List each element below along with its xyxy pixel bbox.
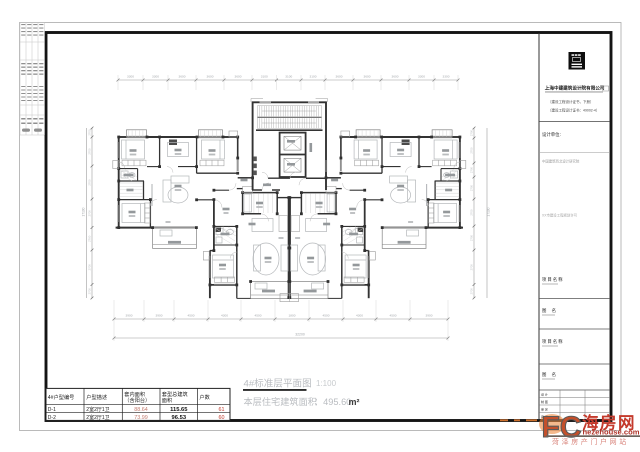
svg-text:3900: 3900 xyxy=(126,314,133,318)
svg-text:4300: 4300 xyxy=(221,314,228,318)
svg-text:套内面积: 套内面积 xyxy=(124,390,145,398)
svg-text:〔建设工程设计证书：49002-4〕: 〔建设工程设计证书：49002-4〕 xyxy=(548,108,599,113)
svg-text:项目名称: 项目名称 xyxy=(542,338,564,345)
svg-text:115.65: 115.65 xyxy=(170,407,188,413)
svg-text:2700: 2700 xyxy=(87,264,91,271)
svg-text:2室2厅1卫: 2室2厅1卫 xyxy=(86,406,109,413)
svg-text:2700: 2700 xyxy=(469,166,473,173)
svg-text:1800: 1800 xyxy=(289,314,296,318)
svg-text:2700: 2700 xyxy=(469,184,473,191)
svg-text:D-1: D-1 xyxy=(48,407,56,413)
svg-text:上海中建建筑设计院有限公司: 上海中建建筑设计院有限公司 xyxy=(545,85,605,92)
svg-text:88.64: 88.64 xyxy=(134,407,148,413)
svg-text:项目名称: 项目名称 xyxy=(542,276,564,283)
svg-text:3900: 3900 xyxy=(156,314,163,318)
svg-text:本层住宅建筑面积: 本层住宅建筑面积 xyxy=(244,396,318,407)
svg-text:32200: 32200 xyxy=(295,332,305,336)
svg-text:4#户型编号: 4#户型编号 xyxy=(48,393,75,401)
svg-text:3600: 3600 xyxy=(364,75,371,79)
svg-text:户数: 户数 xyxy=(199,393,210,401)
svg-text:4500: 4500 xyxy=(188,314,195,318)
svg-text:D-2: D-2 xyxy=(48,415,56,421)
svg-text:2700: 2700 xyxy=(469,264,473,271)
svg-text:菏泽房产门户网站: 菏泽房产门户网站 xyxy=(552,437,629,446)
svg-text:m²: m² xyxy=(349,397,360,407)
svg-text:96.53: 96.53 xyxy=(172,415,187,421)
svg-text:2700: 2700 xyxy=(87,210,91,217)
svg-text:3100: 3100 xyxy=(261,75,268,79)
svg-text:3600: 3600 xyxy=(235,75,242,79)
svg-text:中国建筑西北设计研究院: 中国建筑西北设计研究院 xyxy=(542,159,580,164)
svg-text:（含阳台）: （含阳台） xyxy=(124,396,150,404)
svg-text:套型总建筑: 套型总建筑 xyxy=(162,390,189,398)
svg-text:3300: 3300 xyxy=(127,75,134,79)
svg-text:2室2厅1卫: 2室2厅1卫 xyxy=(86,414,109,421)
svg-text:3900: 3900 xyxy=(426,314,433,318)
svg-text:2700: 2700 xyxy=(87,179,91,186)
svg-text:60: 60 xyxy=(219,415,225,421)
svg-text:17100: 17100 xyxy=(82,207,86,216)
svg-text:设 计: 设 计 xyxy=(541,391,548,396)
svg-text:4#标准层平面图: 4#标准层平面图 xyxy=(244,377,312,389)
svg-text:制 图: 制 图 xyxy=(541,399,548,404)
svg-text:设计单位:: 设计单位: xyxy=(542,131,561,138)
svg-text:1:100: 1:100 xyxy=(316,379,337,388)
svg-text:4500: 4500 xyxy=(390,314,397,318)
svg-text:图 名: 图 名 xyxy=(542,307,558,314)
svg-text:3600: 3600 xyxy=(207,75,214,79)
svg-text:4300: 4300 xyxy=(356,314,363,318)
svg-text:61: 61 xyxy=(219,407,225,413)
svg-text:2700: 2700 xyxy=(87,148,91,155)
svg-text:2700: 2700 xyxy=(469,147,473,154)
svg-text:图 名: 图 名 xyxy=(542,371,558,378)
svg-text:3600: 3600 xyxy=(392,75,399,79)
svg-text:3300: 3300 xyxy=(418,75,425,79)
svg-text:4500: 4500 xyxy=(323,314,330,318)
svg-text:〔建设工程设计证书，下册〕: 〔建设工程设计证书，下册〕 xyxy=(548,99,594,104)
svg-text:户型描述: 户型描述 xyxy=(86,393,107,401)
svg-text:：495.60: ：495.60 xyxy=(314,397,351,407)
svg-text:3100: 3100 xyxy=(285,75,292,79)
svg-text:hezehouse.com: hezehouse.com xyxy=(583,428,640,437)
svg-text:2700: 2700 xyxy=(87,288,91,295)
svg-text:3600: 3600 xyxy=(336,75,343,79)
svg-text:4500: 4500 xyxy=(255,314,262,318)
svg-text:3300: 3300 xyxy=(152,75,159,79)
svg-text:2700: 2700 xyxy=(87,129,91,136)
svg-text:2700: 2700 xyxy=(469,288,473,295)
svg-text:面积: 面积 xyxy=(162,397,172,404)
svg-text:73.99: 73.99 xyxy=(134,415,148,421)
svg-text:XX市建设工程规划许可: XX市建设工程规划许可 xyxy=(542,213,578,218)
svg-text:2700: 2700 xyxy=(469,129,473,136)
svg-text:3600: 3600 xyxy=(179,75,186,79)
svg-text:2700: 2700 xyxy=(469,234,473,241)
svg-text:3100: 3100 xyxy=(310,75,317,79)
svg-text:2700: 2700 xyxy=(87,235,91,242)
svg-text:3300: 3300 xyxy=(443,75,450,79)
svg-text:17100: 17100 xyxy=(487,207,491,216)
svg-text:2700: 2700 xyxy=(469,209,473,216)
